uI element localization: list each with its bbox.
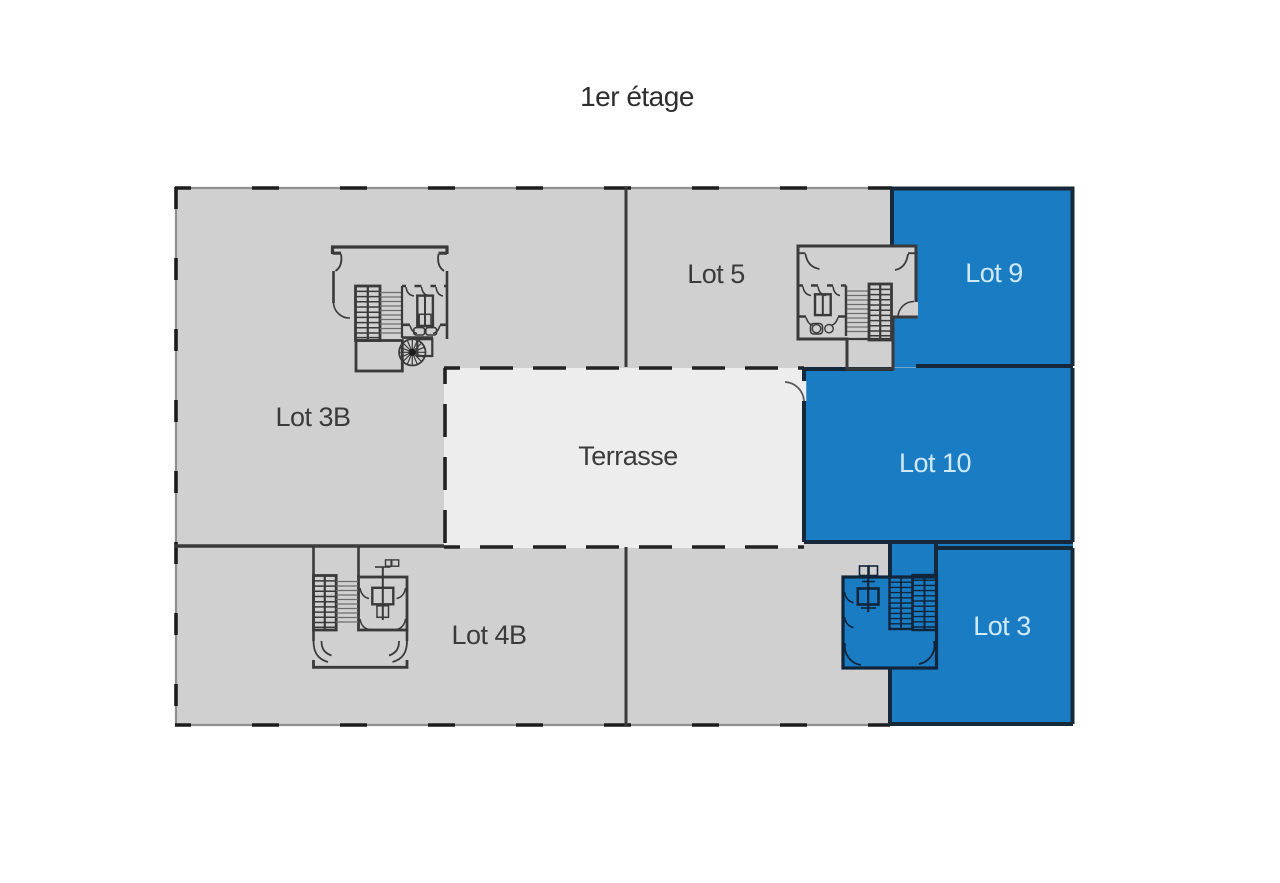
- svg-text:Lot 10: Lot 10: [899, 448, 971, 478]
- svg-text:Lot 3: Lot 3: [973, 611, 1031, 641]
- svg-text:Terrasse: Terrasse: [578, 441, 678, 471]
- svg-text:Lot 3B: Lot 3B: [275, 402, 350, 432]
- svg-text:Lot 4B: Lot 4B: [451, 620, 526, 650]
- svg-text:Lot 9: Lot 9: [965, 258, 1023, 288]
- svg-text:1er étage: 1er étage: [580, 81, 694, 112]
- svg-text:Lot 5: Lot 5: [687, 259, 745, 289]
